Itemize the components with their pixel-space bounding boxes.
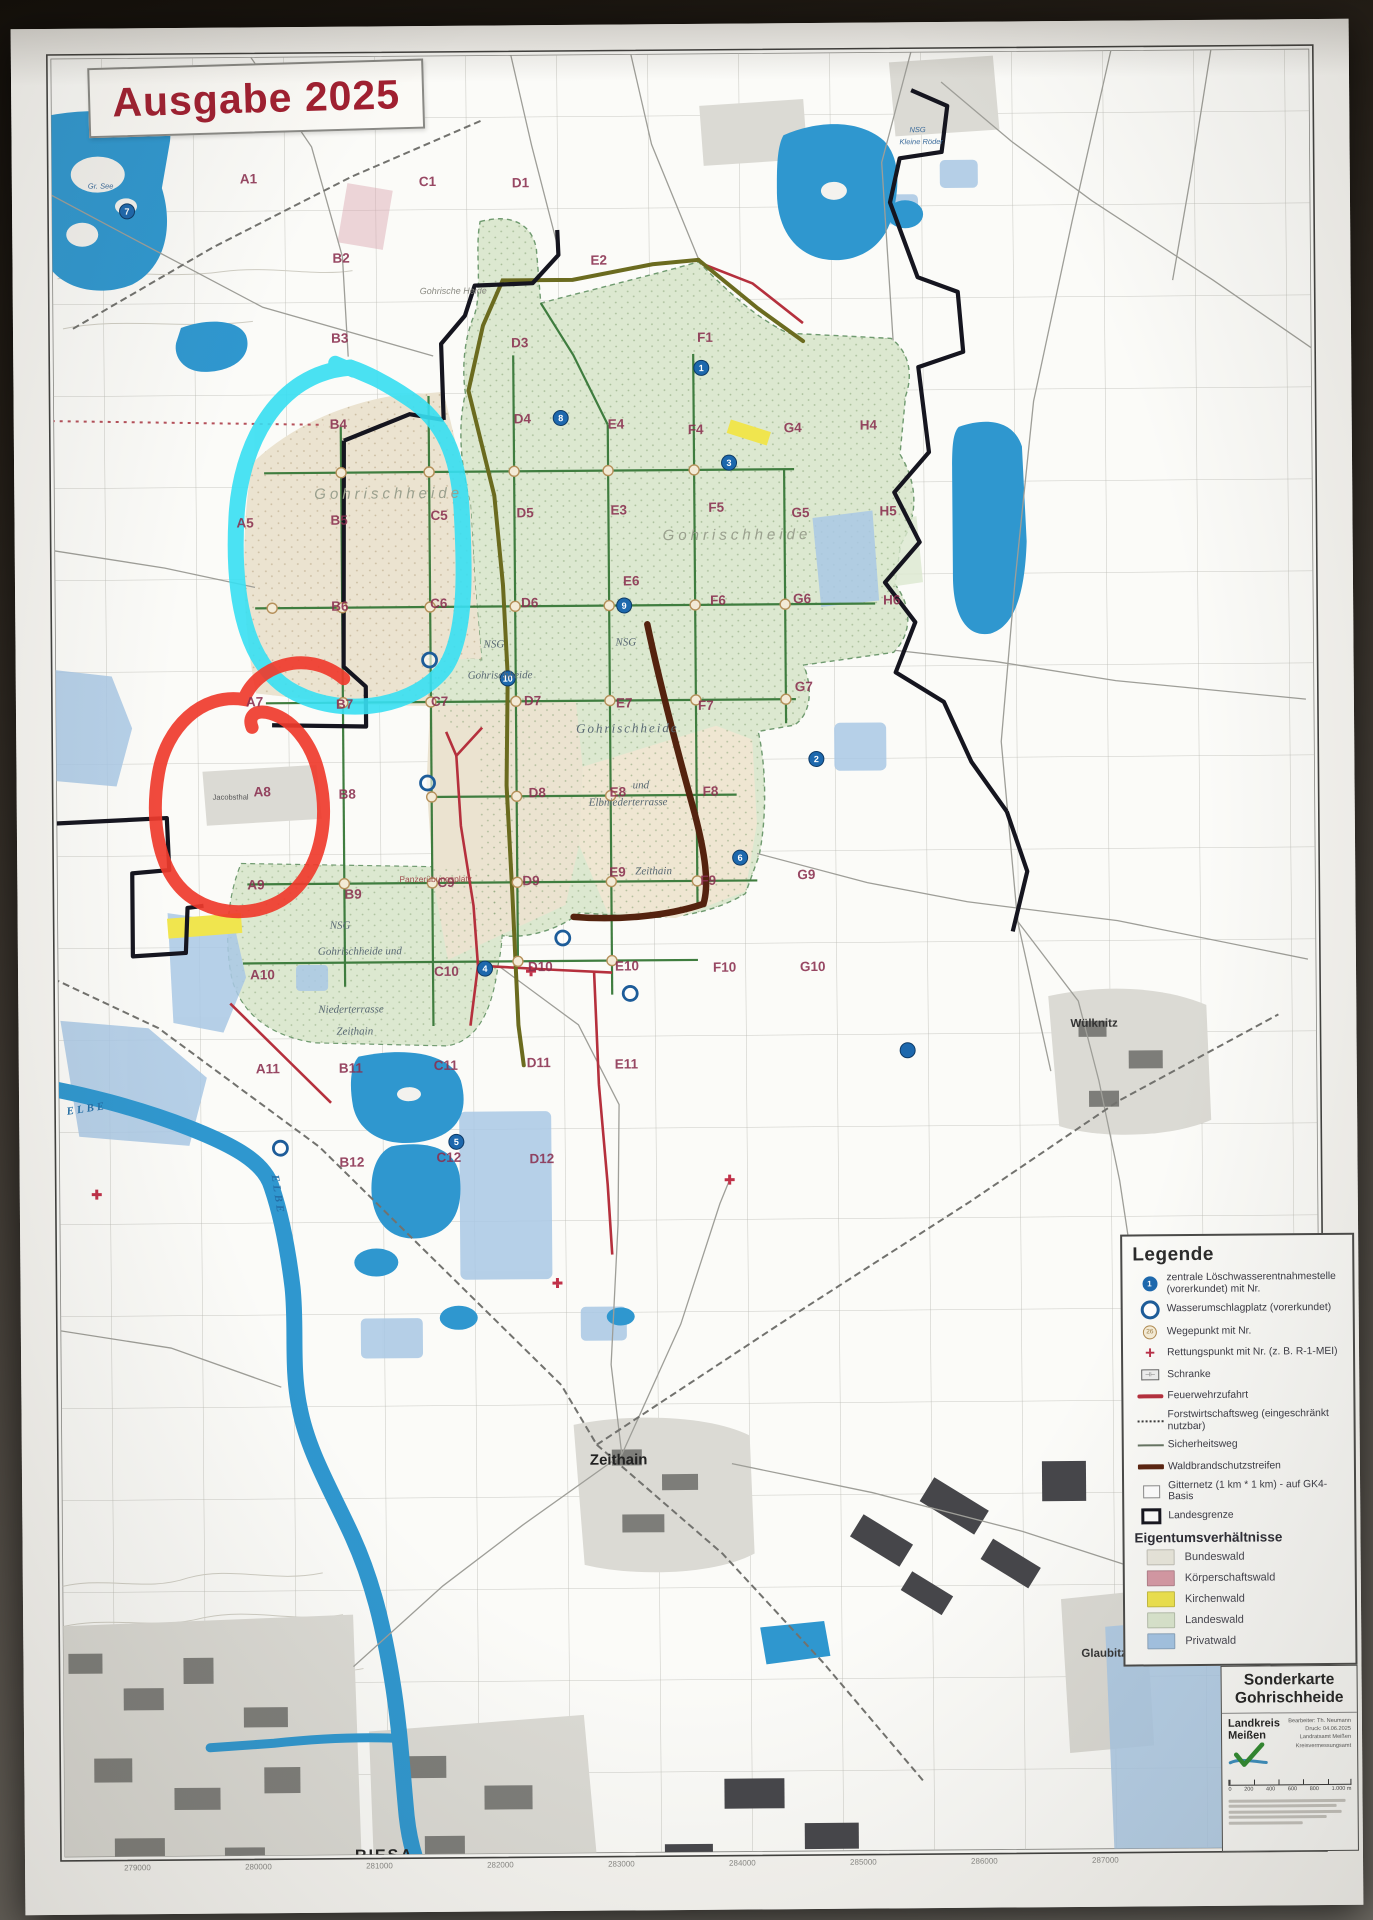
legend-item-label: Feuerwehrzufahrt xyxy=(1167,1390,1248,1402)
line-brown-legend-icon xyxy=(1138,1464,1164,1470)
landkreis-meissen-checkmark-icon xyxy=(1228,1742,1268,1768)
credit-line: Kreisvermessungsamt xyxy=(1284,1742,1351,1751)
way-legend-icon: 26 xyxy=(1143,1325,1157,1339)
grid-cell-label: A7 xyxy=(246,694,263,709)
margin-coordinate-label: 280000 xyxy=(245,1862,272,1871)
title-block: Sonderkarte Gohrischheide Landkreis Meiß… xyxy=(1221,1665,1359,1852)
ownership-label: Bundeswald xyxy=(1185,1551,1245,1563)
legend-item: ⊣⊢Schranke xyxy=(1133,1365,1345,1384)
margin-coordinate-label: 285000 xyxy=(850,1858,877,1867)
grid-cell-label: C5 xyxy=(430,508,448,523)
legend-items: 1zentrale Löschwasserentnahmestelle (vor… xyxy=(1132,1271,1346,1525)
ownership-color-swatch xyxy=(1147,1570,1175,1586)
grid-cell-label: D12 xyxy=(529,1151,554,1166)
place-label: Elbniederterrasse xyxy=(588,796,668,809)
legend-item-label: Schranke xyxy=(1167,1369,1211,1381)
water-extraction-number: 8 xyxy=(558,413,563,423)
grid-cell-label: E6 xyxy=(623,573,640,588)
place-label: Wülknitz xyxy=(1070,1018,1118,1030)
place-label: und xyxy=(633,779,650,791)
grid-cell-label: B11 xyxy=(339,1061,364,1076)
place-label: NSG xyxy=(614,636,636,648)
margin-coordinate-label: 281000 xyxy=(366,1861,393,1870)
ownership-label: Kirchenwald xyxy=(1185,1593,1245,1605)
waypoint-marker xyxy=(424,467,434,477)
scale-label: 1.000 m xyxy=(1332,1786,1352,1792)
sq-thick-legend-icon xyxy=(1141,1508,1161,1524)
grid-cell-label: F6 xyxy=(710,593,726,608)
grid-cell-label: D11 xyxy=(527,1055,552,1070)
legend-item: Wasserumschlagplatz (vorerkundet) xyxy=(1133,1298,1345,1319)
water-transfer-ring-icon xyxy=(556,931,570,945)
grid-cell-label: E11 xyxy=(615,1056,639,1071)
legend-item-label: zentrale Löschwasserentnahmestelle (vore… xyxy=(1166,1271,1344,1295)
ownership-item: Landeswald xyxy=(1147,1611,1347,1629)
agency-logo: Landkreis Meißen xyxy=(1228,1717,1280,1774)
ownership-label: Landeswald xyxy=(1185,1614,1244,1626)
grid-cell-label: B5 xyxy=(330,513,348,528)
grid-cell-label: D8 xyxy=(529,785,547,800)
grid-cell-label: B7 xyxy=(336,697,353,712)
grid-cell-label: G10 xyxy=(800,959,826,974)
ownership-item: Privatwald xyxy=(1147,1632,1347,1650)
water-extraction-number: 4 xyxy=(482,964,487,974)
waypoint-marker xyxy=(267,603,277,613)
waypoint-marker xyxy=(781,694,791,704)
grid-cell-label: B2 xyxy=(332,251,349,266)
edition-badge-text: Ausgabe 2025 xyxy=(112,71,401,126)
line-gray-legend-icon xyxy=(1138,1444,1164,1447)
grid-cell-label: C7 xyxy=(431,694,448,709)
ownership-item: Kirchenwald xyxy=(1147,1590,1347,1608)
grid-cell-label: E9 xyxy=(609,864,626,879)
place-label: NSG xyxy=(909,125,925,134)
legend-panel: Legende 1zentrale Löschwasserentnahmeste… xyxy=(1120,1233,1357,1667)
legend-item: 26Wegepunkt mit Nr. xyxy=(1133,1322,1345,1341)
legend-item: Feuerwehrzufahrt xyxy=(1133,1386,1345,1405)
title-divider xyxy=(1222,1711,1357,1713)
waypoint-marker xyxy=(513,956,523,966)
legend-item: Gitternetz (1 km * 1 km) - auf GK4-Basis xyxy=(1134,1478,1346,1503)
waypoint-marker xyxy=(427,792,437,802)
place-label: Panzerübungsplatz xyxy=(399,874,472,885)
place-label: NSG xyxy=(482,638,504,650)
photo-of-printed-map: { "edition_badge": {"text": "Ausgabe 202… xyxy=(0,0,1373,1920)
grid-cell-label: B9 xyxy=(344,887,361,902)
waypoint-marker xyxy=(512,791,522,801)
grid-cell-label: H6 xyxy=(883,592,901,607)
grid-cell-label: D10 xyxy=(528,959,553,974)
waypoint-marker xyxy=(510,601,520,611)
grid-cell-label: A9 xyxy=(247,877,264,892)
grid-cell-label: C1 xyxy=(419,174,437,189)
grid-cell-label: F10 xyxy=(713,960,736,975)
place-label: Glaubitz xyxy=(1081,1648,1127,1660)
grid-cell-label: G5 xyxy=(791,505,810,520)
grid-cell-label: E2 xyxy=(590,253,607,268)
agency-name-line1: Landkreis xyxy=(1228,1717,1280,1730)
place-label: Zeithain xyxy=(635,865,672,877)
map-paper-sheet: 71839102645 A1C1D1B2E2B3D3F1B4D4E4F4G4H4… xyxy=(11,19,1364,1915)
grid-cell-label: D4 xyxy=(514,411,532,426)
map-title-line2: Gohrischheide xyxy=(1228,1689,1351,1708)
place-label: Gohrischheide xyxy=(576,720,679,736)
grid-cell-label: F1 xyxy=(697,330,713,345)
grid-cell-label: G6 xyxy=(793,591,812,606)
agency-name-line2: Meißen xyxy=(1228,1730,1280,1743)
place-label: Gr. See xyxy=(88,181,114,190)
grid-cell-label: F8 xyxy=(703,784,719,799)
cross-legend-icon: + xyxy=(1145,1348,1155,1358)
bluedot-legend-icon: 1 xyxy=(1142,1276,1157,1291)
grid-cell-label: A1 xyxy=(240,171,258,186)
legend-item-label: Waldbrandschutzstreifen xyxy=(1168,1460,1281,1472)
margin-coordinate-label: 284000 xyxy=(729,1858,756,1867)
legend-item-label: Rettungspunkt mit Nr. (z. B. R-1-MEI) xyxy=(1167,1346,1338,1359)
legend-item: Sicherheitsweg xyxy=(1134,1435,1346,1454)
ownership-color-swatch xyxy=(1147,1549,1175,1565)
place-label: Gohrischheide und xyxy=(318,945,403,958)
grid-cell-label: B12 xyxy=(339,1155,364,1170)
legend-item-label: Wasserumschlagplatz (vorerkundet) xyxy=(1167,1302,1332,1315)
waypoint-marker xyxy=(511,696,521,706)
ownership-label: Körperschaftswald xyxy=(1185,1572,1276,1585)
ownership-item: Körperschaftswald xyxy=(1147,1569,1347,1587)
water-extraction-number: 1 xyxy=(699,363,704,373)
place-label: Zeithain xyxy=(336,1025,373,1037)
water-extraction-number: 6 xyxy=(738,853,743,863)
water-extraction-number: 7 xyxy=(125,207,130,217)
waypoint-marker xyxy=(603,466,613,476)
grid-cell-label: A11 xyxy=(256,1061,281,1076)
grid-cell-label: A8 xyxy=(254,784,272,799)
waypoint-marker xyxy=(512,877,522,887)
grid-cell-label: B8 xyxy=(339,787,357,802)
ownership-label: Privatwald xyxy=(1185,1635,1236,1647)
legend-item: Waldbrandschutzstreifen xyxy=(1134,1457,1346,1476)
waypoint-marker xyxy=(604,601,614,611)
margin-coordinate-label: 279000 xyxy=(124,1863,151,1872)
scale-label: 800 xyxy=(1310,1786,1319,1792)
waypoint-marker xyxy=(336,468,346,478)
grid-cell-label: G9 xyxy=(797,867,815,882)
legend-item: Forstwirtschaftsweg (eingeschränkt nutzb… xyxy=(1133,1408,1345,1433)
water-transfer-ring-icon xyxy=(273,1141,287,1155)
grid-cell-label: D7 xyxy=(524,693,541,708)
grid-cell-label: G7 xyxy=(795,679,813,694)
place-label: Gohrischheide xyxy=(663,526,812,544)
place-label: Zeithain xyxy=(590,1451,648,1468)
line-red-legend-icon xyxy=(1137,1395,1163,1399)
waypoint-marker xyxy=(605,696,615,706)
ownership-items: BundeswaldKörperschaftswaldKirchenwaldLa… xyxy=(1135,1548,1348,1650)
grid-cell-label: C12 xyxy=(436,1150,461,1165)
waypoint-marker xyxy=(509,466,519,476)
grid-cell-label: E4 xyxy=(608,416,625,431)
legend-title: Legende xyxy=(1132,1243,1344,1267)
grid-cell-label: D1 xyxy=(512,175,530,190)
legend-item: 1zentrale Löschwasserentnahmestelle (vor… xyxy=(1132,1271,1344,1296)
schranke-legend-icon: ⊣⊢ xyxy=(1141,1369,1159,1380)
margin-coordinate-label: 286000 xyxy=(971,1857,998,1866)
ownership-color-swatch xyxy=(1147,1633,1175,1649)
scale-label: 0 xyxy=(1228,1787,1231,1793)
ownership-color-swatch xyxy=(1147,1591,1175,1607)
water-extraction-number: 9 xyxy=(622,601,627,611)
grid-cell-label: B6 xyxy=(331,599,349,614)
waypoint-marker xyxy=(689,465,699,475)
scale-bar: 02004006008001.000 m xyxy=(1228,1779,1351,1793)
grid-cell-label: F9 xyxy=(700,873,716,888)
koerperschaftswald-patch xyxy=(337,183,392,250)
sq-thin-legend-icon xyxy=(1143,1485,1160,1498)
grid-cell-label: D3 xyxy=(511,335,529,350)
grid-cell-label: F4 xyxy=(688,422,704,437)
fine-print-block xyxy=(1229,1799,1352,1825)
bluering-legend-icon xyxy=(1140,1300,1159,1319)
edition-badge: Ausgabe 2025 xyxy=(87,59,425,139)
legend-item-label: Sicherheitsweg xyxy=(1168,1439,1238,1451)
credit-line: Landratsamt Meißen xyxy=(1284,1733,1351,1742)
grid-cell-label: C6 xyxy=(430,596,448,611)
grid-cell-label: D9 xyxy=(522,873,539,888)
scale-label: 400 xyxy=(1266,1786,1275,1792)
map-title-line1: Sonderkarte xyxy=(1228,1671,1351,1690)
place-label: NSG xyxy=(329,920,351,932)
scale-label: 600 xyxy=(1288,1786,1297,1792)
margin-coordinate-label: 283000 xyxy=(608,1859,635,1868)
waypoint-marker xyxy=(780,599,790,609)
grid-cell-label: F5 xyxy=(708,500,724,515)
grid-cell-label: D5 xyxy=(516,505,534,520)
credits-text: Bearbeiter: Th. NeumannDruck: 04.06.2025… xyxy=(1284,1716,1351,1750)
grid-cell-label: G4 xyxy=(784,420,803,435)
place-label: Niederterrasse xyxy=(317,1003,384,1016)
line-dot-legend-icon xyxy=(1138,1420,1164,1422)
ownership-item: Bundeswald xyxy=(1147,1548,1347,1566)
legend-item: +Rettungspunkt mit Nr. (z. B. R-1-MEI) xyxy=(1133,1343,1345,1362)
margin-coordinate-label: 287000 xyxy=(1092,1856,1119,1865)
ownership-title: Eigentumsverhältnisse xyxy=(1134,1529,1346,1546)
water-transfer-ring-icon xyxy=(420,776,434,790)
grid-cell-label: E7 xyxy=(616,695,633,710)
legend-item-label: Landesgrenze xyxy=(1168,1510,1233,1522)
legend-item-label: Wegepunkt mit Nr. xyxy=(1167,1325,1252,1337)
grid-cell-label: E10 xyxy=(615,958,639,973)
place-label: Gohrische Heide xyxy=(420,286,487,297)
place-label: Kleine Röder xyxy=(899,137,943,146)
legend-item: Landesgrenze xyxy=(1134,1506,1346,1525)
legend-item-label: Forstwirtschaftsweg (eingeschränkt nutzb… xyxy=(1167,1408,1345,1432)
margin-coordinate-label: 282000 xyxy=(487,1860,514,1869)
waypoint-marker xyxy=(690,600,700,610)
grid-cell-label: F7 xyxy=(698,698,714,713)
place-label: Gohrischheide xyxy=(468,669,533,682)
legend-item-label: Gitternetz (1 km * 1 km) - auf GK4-Basis xyxy=(1168,1478,1346,1502)
grid-cell-label: H5 xyxy=(879,503,897,518)
grid-cell-label: A10 xyxy=(250,967,275,982)
water-extraction-number: 2 xyxy=(814,754,819,764)
ownership-color-swatch xyxy=(1147,1612,1175,1628)
water-extraction-number: 5 xyxy=(454,1137,459,1147)
grid-cell-label: C11 xyxy=(434,1058,459,1073)
grid-cell-label: B4 xyxy=(330,417,348,432)
grid-cell-label: E3 xyxy=(610,502,627,517)
grid-cell-label: B3 xyxy=(331,331,349,346)
place-label: Jacobsthal xyxy=(213,792,249,801)
grid-cell-label: C10 xyxy=(434,964,459,979)
grid-cell-label: D6 xyxy=(521,595,539,610)
grid-cell-label: A5 xyxy=(236,515,254,530)
water-transfer-ring-icon xyxy=(423,653,437,667)
water-extraction-dot-icon xyxy=(900,1043,915,1058)
water-extraction-number: 3 xyxy=(726,458,731,468)
place-label: Gohrischheide xyxy=(314,485,463,503)
water-transfer-ring-icon xyxy=(623,986,637,1000)
scale-label: 200 xyxy=(1244,1786,1253,1792)
grid-cell-label: H4 xyxy=(860,417,878,432)
